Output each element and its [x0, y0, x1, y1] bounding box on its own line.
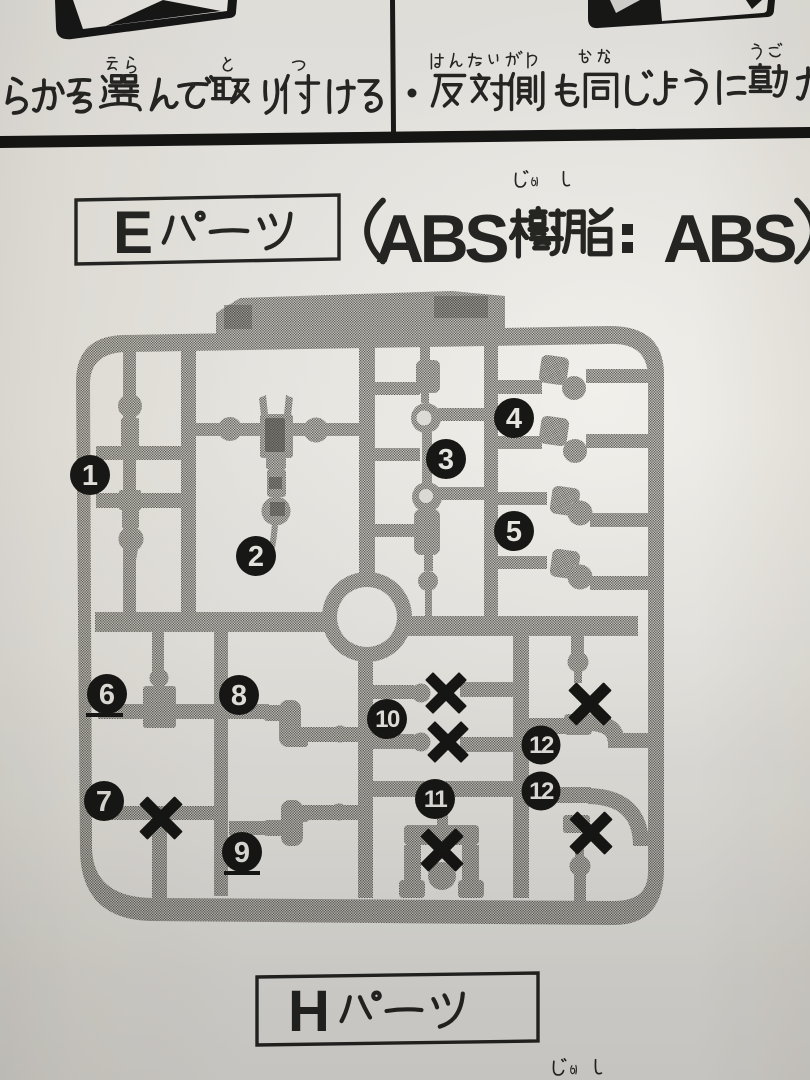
svg-text:4: 4 — [506, 403, 522, 435]
svg-text:7: 7 — [96, 786, 112, 818]
svg-text:8: 8 — [231, 680, 247, 712]
svg-text:1: 1 — [82, 460, 98, 492]
svg-text:9: 9 — [234, 837, 250, 869]
svg-text:ABS: ABS — [375, 201, 507, 277]
svg-text:5: 5 — [506, 516, 522, 548]
svg-text:6: 6 — [99, 679, 115, 711]
svg-text:11: 11 — [424, 786, 448, 813]
svg-text:2: 2 — [248, 541, 264, 573]
svg-text:3: 3 — [438, 444, 454, 476]
svg-text:ABS: ABS — [663, 201, 795, 277]
svg-text:E: E — [113, 199, 153, 266]
svg-text:10: 10 — [375, 706, 400, 733]
svg-text:H: H — [288, 979, 330, 1044]
svg-text:12: 12 — [529, 778, 554, 805]
svg-text:12: 12 — [529, 732, 554, 759]
